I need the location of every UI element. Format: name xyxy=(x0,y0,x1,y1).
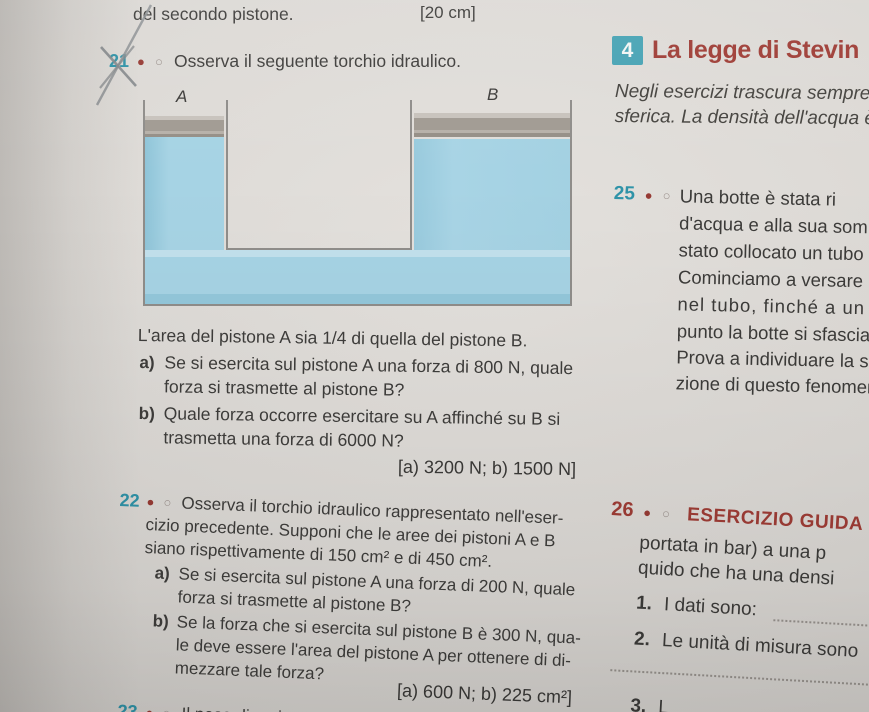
pencil-cross-mark xyxy=(0,0,200,120)
intro-line2: sferica. La densità dell'acqua è xyxy=(615,105,869,131)
question-b-line1: Quale forza occorre esercitare su A affi… xyxy=(164,403,561,430)
liquid-column-b xyxy=(414,139,570,253)
book-page-photo: del secondo pistone. [20 cm] 21 ● ○ Osse… xyxy=(0,0,869,712)
difficulty-dot-empty-icon: ○ xyxy=(663,188,671,204)
difficulty-dot-empty-icon: ○ xyxy=(662,506,671,523)
exercise-22-number: 22 xyxy=(119,489,140,512)
difficulty-dot-filled-icon: ● xyxy=(145,705,153,712)
exercise-21-statement: L'area del pistone A sia 1/4 di quella d… xyxy=(138,325,528,352)
exercise-25-line: d'acqua e alla sua som xyxy=(679,211,868,238)
exercise-25-line: stato collocato un tubo xyxy=(678,238,864,265)
difficulty-dot-filled-icon: ● xyxy=(645,188,653,204)
difficulty-dot-empty-icon: ○ xyxy=(162,706,170,712)
exercise-23-number: 23 xyxy=(117,700,138,712)
liquid-channel xyxy=(145,250,570,304)
bracket-answer-20cm: [20 cm] xyxy=(420,2,476,23)
liquid-column-a xyxy=(145,137,224,253)
step-3-number: 3. xyxy=(630,694,647,712)
question-b-line3: mezzare tale forza? xyxy=(174,657,324,684)
exercise-25-line: punto la botte si sfascia. xyxy=(677,319,869,346)
step-1-number: 1. xyxy=(635,592,652,617)
guided-exercise-badge: ESERCIZIO GUIDA xyxy=(686,503,863,537)
fill-in-dotted-line xyxy=(610,669,869,687)
exercise-21-prompt: Osserva il seguente torchio idraulico. xyxy=(174,51,461,73)
step-1-text: I dati sono: xyxy=(663,593,757,622)
exercise-21-answer: [a) 3200 N; b) 1500 N] xyxy=(336,455,576,481)
question-b-label: b) xyxy=(152,610,169,632)
step-2-number: 2. xyxy=(633,627,650,652)
exercise-22-answer: [a) 600 N; b) 225 cm²] xyxy=(342,677,573,709)
exercise-26-number: 26 xyxy=(611,497,635,523)
step-3-text: L xyxy=(658,696,670,712)
exercise-25-line: Prova a individuare la s xyxy=(676,345,869,372)
exercise-23-fragment: Il peso di un ippopotamo vi xyxy=(181,703,384,712)
section-title: La legge di Stevin xyxy=(652,35,859,66)
fill-in-dotted-line xyxy=(773,619,869,628)
tank-inner-gap xyxy=(226,100,412,250)
difficulty-dot-filled-icon: ● xyxy=(643,505,652,522)
exercise-25-line: nel tubo, finché a un xyxy=(677,292,865,319)
exercise-25-line: Cominciamo a versare xyxy=(678,265,864,292)
question-a-label: a) xyxy=(139,352,154,373)
question-b-label: b) xyxy=(139,403,155,424)
exercise-25-line: zione di questo fenomer xyxy=(676,371,869,398)
question-a-line2: forza si trasmette al pistone B? xyxy=(164,376,405,401)
question-a-label: a) xyxy=(154,562,170,584)
question-a-line1: Se si esercita sul pistone A una forza d… xyxy=(164,352,573,380)
exercise-25-number: 25 xyxy=(614,182,636,206)
exercise-25-line: Una botte è stata ri xyxy=(679,184,836,210)
difficulty-dot-empty-icon: ○ xyxy=(163,495,172,512)
question-b-line2: trasmetta una forza di 6000 N? xyxy=(163,427,404,452)
difficulty-dot-filled-icon: ● xyxy=(146,494,155,511)
piston-b xyxy=(414,113,570,137)
step-2-text: Le unità di misura sono xyxy=(661,629,858,664)
section-number-badge: 4 xyxy=(612,36,643,65)
intro-line1: Negli esercizi trascura sempre xyxy=(615,80,869,106)
